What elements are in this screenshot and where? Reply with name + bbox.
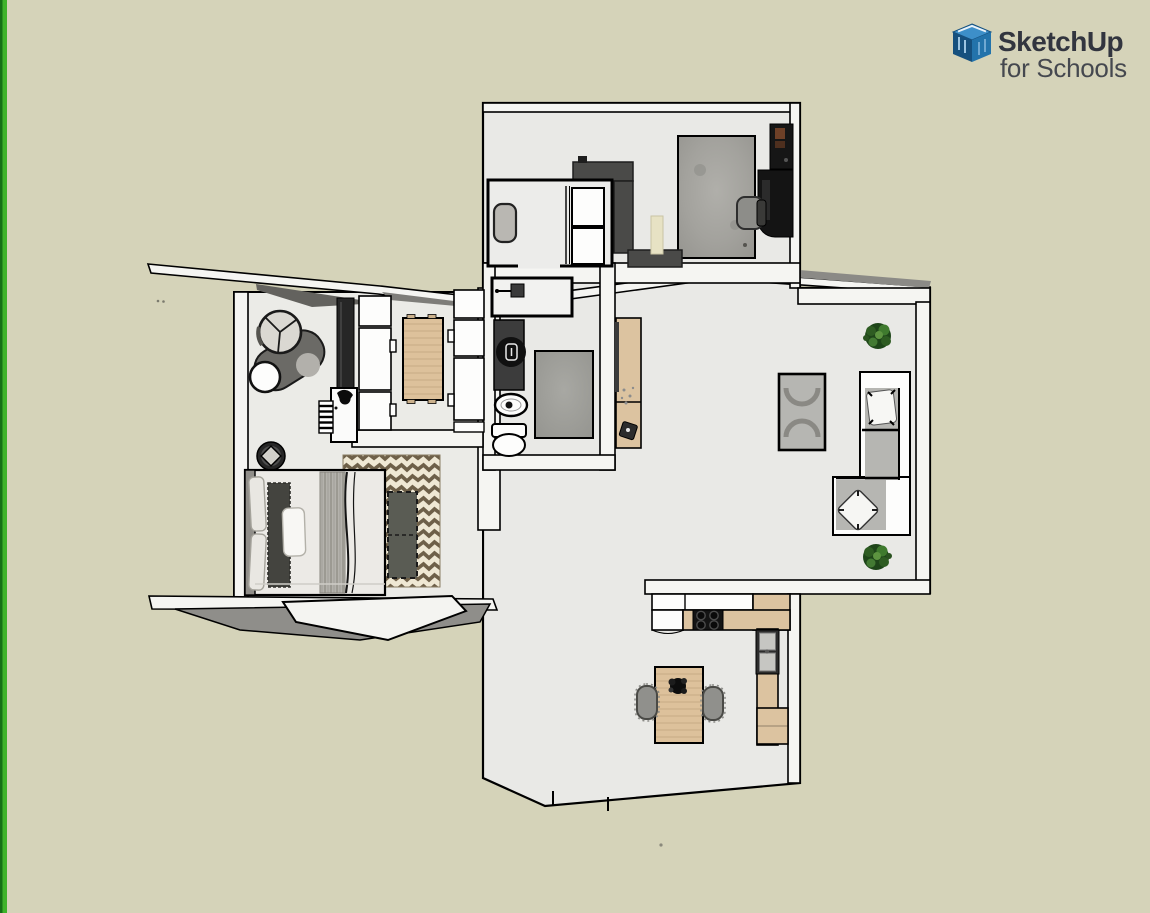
bath-mat [535, 351, 593, 438]
bathroom-vanity [494, 320, 526, 390]
console-table [615, 318, 641, 448]
wall-living-north [798, 288, 930, 304]
office-door [651, 216, 663, 254]
sofa-pillow-top [866, 389, 897, 425]
wall-living-east [916, 302, 930, 593]
kitchen-dining-table [655, 667, 703, 743]
room-closet [488, 180, 612, 266]
canvas-edge-stripe [0, 0, 7, 913]
bed-blanket [320, 472, 345, 593]
sketchup-viewport[interactable]: SketchUp for Schools [0, 0, 1150, 913]
shower [492, 278, 572, 316]
table-centerpiece-plant [669, 678, 688, 694]
kitchen-sink [756, 630, 779, 674]
kitchen-chair-left [635, 684, 659, 721]
bed-white-pillow [282, 508, 306, 557]
coffee-table [779, 374, 825, 450]
office-chair [737, 197, 766, 229]
wall-living-south [645, 580, 930, 594]
wardrobe [337, 298, 354, 391]
bench-ottoman [388, 492, 417, 578]
wall-bathroom-east [600, 263, 615, 470]
gas-stove [693, 610, 723, 630]
bed [245, 470, 385, 595]
wing-bottom-wall [149, 596, 497, 640]
kitchen-chair-right [701, 685, 725, 722]
sketchup-logo-mark [953, 24, 991, 62]
planter-pot [257, 442, 285, 470]
closet-cabinets [566, 186, 604, 264]
wall-bathroom-south [483, 455, 615, 470]
dining-table-wood [403, 315, 443, 404]
toilet [492, 424, 526, 456]
dining-chairs-right [448, 290, 484, 432]
sketchup-logo: SketchUp for Schools [953, 24, 1127, 83]
bookshelf [770, 124, 793, 169]
radiator [319, 401, 333, 433]
bathroom-sink [495, 394, 527, 416]
side-table [250, 362, 280, 392]
dining-chairs-left [359, 296, 396, 430]
closet-bench [494, 204, 516, 242]
logo-subtitle: for Schools [1000, 53, 1127, 83]
